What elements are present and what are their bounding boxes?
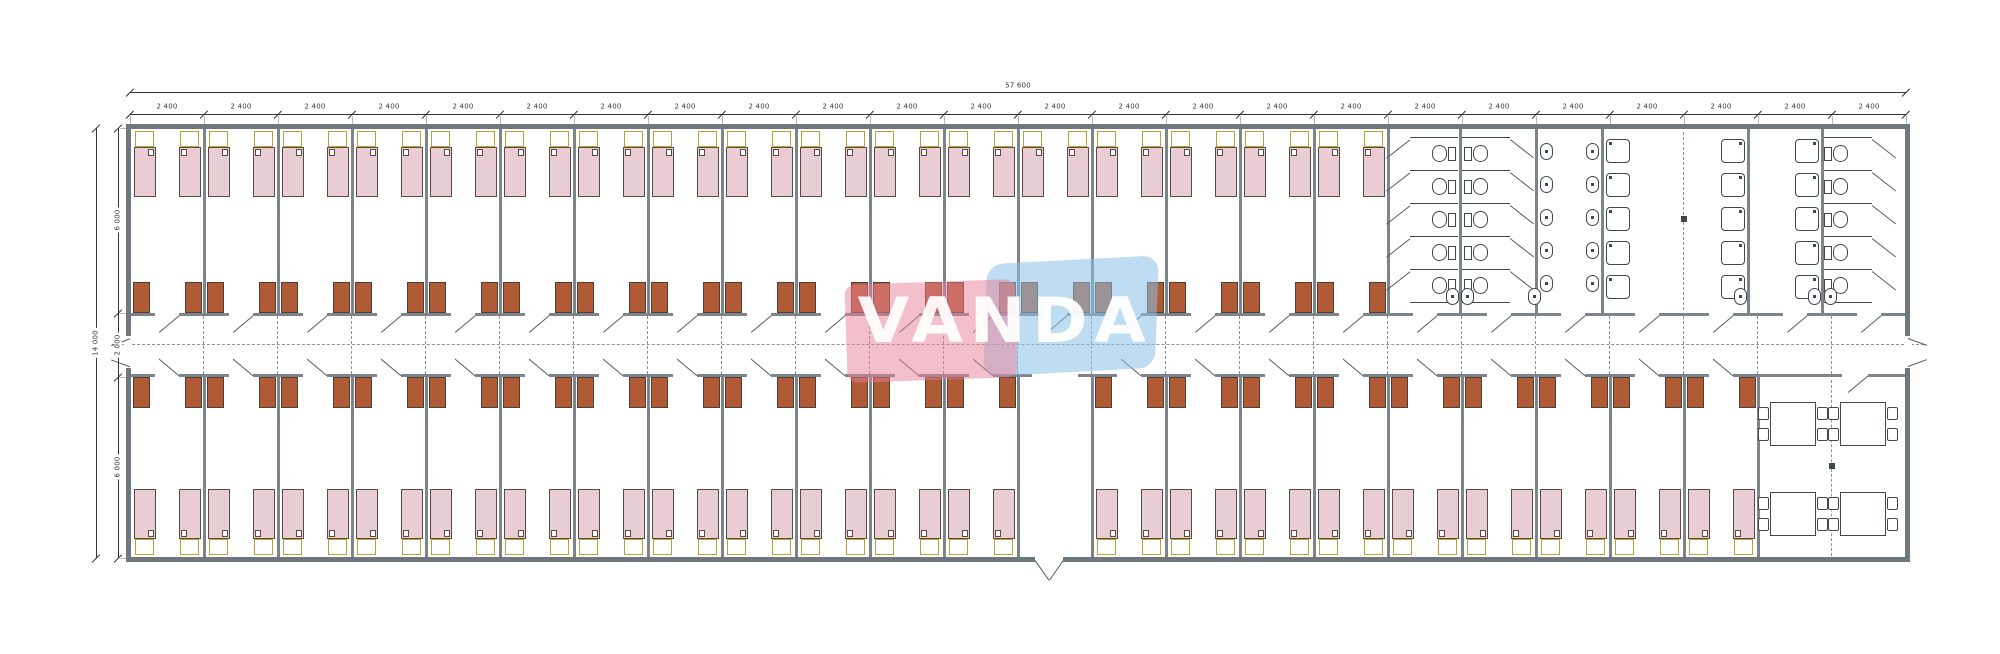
wall-partition-top [721, 129, 724, 316]
bed-blanket-fold [1143, 530, 1149, 537]
dim-height-segment-label: 6 000 [115, 454, 122, 479]
bed-pillow [431, 539, 450, 555]
toilet-bowl [1473, 244, 1488, 261]
bed-blanket-fold [1332, 149, 1338, 156]
wardrobe [1147, 282, 1164, 313]
grid-dashed-line [1609, 316, 1610, 374]
door-leaf [677, 315, 698, 333]
dim-module-width-label: 2 400 [1338, 104, 1363, 111]
wardrobe [1369, 377, 1386, 408]
grid-dashed-line [647, 316, 648, 374]
bed-blanket-fold [666, 530, 672, 537]
bed-pillow [254, 539, 273, 555]
bed-pillow [624, 539, 643, 555]
bed-blanket-fold [962, 149, 968, 156]
wardrobe [1295, 377, 1312, 408]
bed-blanket-fold [888, 530, 894, 537]
bed-pillow [624, 131, 643, 147]
wardrobe [925, 282, 942, 313]
dim-extension-line [1166, 116, 1167, 124]
dim-extension-line [130, 116, 131, 124]
bed-blanket-fold [1258, 149, 1264, 156]
bed-pillow [994, 131, 1013, 147]
bed-pillow [846, 131, 865, 147]
grid-marker [1829, 463, 1835, 469]
dim-total-height-label: 14 000 [93, 328, 100, 358]
door-leaf [751, 315, 772, 333]
toilet-bowl [1473, 145, 1488, 162]
shower-drain [1813, 278, 1816, 281]
bed-pillow [180, 131, 199, 147]
grid-dashed-line [1165, 316, 1166, 374]
bed-blanket-fold [1143, 149, 1149, 156]
wardrobe [1591, 377, 1608, 408]
wardrobe [407, 282, 424, 313]
floor-plan-drawing: 57 6002 4002 4002 4002 4002 4002 4002 40… [0, 0, 2000, 654]
toilet-stall-door [1510, 271, 1534, 290]
door-leaf [1343, 315, 1364, 333]
bed-pillow [550, 131, 569, 147]
bed-pillow [1245, 131, 1264, 147]
bed-pillow [1171, 131, 1190, 147]
dim-extension-line [870, 116, 871, 124]
dim-height-segment-label: 6 000 [115, 207, 122, 232]
wardrobe [1369, 282, 1386, 313]
dim-height-segment-label: 2 000 [115, 332, 122, 357]
wardrobe [1443, 377, 1460, 408]
dining-table [1770, 402, 1816, 446]
toilet-bowl [1432, 244, 1447, 261]
door-leaf [1861, 315, 1882, 333]
shower-drain [1813, 244, 1816, 247]
wardrobe [281, 377, 298, 408]
dim-line-total-width [130, 92, 1906, 93]
toilet-stall-divider [1824, 137, 1872, 138]
bed-blanket-fold [888, 149, 894, 156]
washbasin-detail [1545, 249, 1548, 252]
toilet-tank [1824, 246, 1832, 260]
bed-pillow [505, 131, 524, 147]
dim-extension-line [1758, 116, 1759, 124]
floor-plan-canvas: 57 6002 4002 4002 4002 4002 4002 4002 40… [0, 0, 2000, 654]
door-leaf [1269, 315, 1290, 333]
bed-blanket-fold [403, 149, 409, 156]
toilet-stall-door [1386, 172, 1410, 191]
wardrobe [999, 282, 1016, 313]
bed-blanket-fold [255, 149, 261, 156]
wardrobe [1517, 377, 1534, 408]
door-leaf [529, 315, 550, 333]
grid-dashed-line [1757, 316, 1758, 374]
dim-module-width-label: 2 400 [1116, 104, 1141, 111]
wardrobe [333, 282, 350, 313]
bed-pillow [476, 539, 495, 555]
bed-blanket-fold [1628, 530, 1634, 537]
bed-blanket-fold [329, 530, 335, 537]
door-leaf [1565, 315, 1586, 333]
bed-blanket-fold [444, 530, 450, 537]
bed-pillow [801, 539, 820, 555]
bed-pillow [402, 539, 421, 555]
door-leaf [899, 315, 920, 333]
toilet-stall-divider [1410, 269, 1458, 270]
wardrobe [629, 377, 646, 408]
wardrobe [947, 282, 964, 313]
wardrobe [873, 282, 890, 313]
bed-blanket-fold [477, 530, 483, 537]
wall-partition-top [1239, 129, 1242, 316]
wall-partition-bottom [277, 374, 280, 557]
bed-blanket-fold [518, 530, 524, 537]
bed-blanket-fold [740, 149, 746, 156]
shower-drain [1609, 142, 1612, 145]
dining-table [1770, 492, 1816, 536]
bed-pillow [254, 131, 273, 147]
bed-pillow [1467, 539, 1486, 555]
bed-pillow [1615, 539, 1634, 555]
dim-module-width-label: 2 400 [1264, 104, 1289, 111]
grid-dashed-line [1535, 316, 1536, 374]
bed-pillow [328, 539, 347, 555]
wardrobe [1073, 282, 1090, 313]
wardrobe [1169, 282, 1186, 313]
wall-partition-bottom [1387, 374, 1390, 557]
toilet-stall-divider [1462, 137, 1510, 138]
toilet-stall-door [1510, 205, 1534, 224]
wall-partition-bottom [1091, 374, 1094, 557]
shower-drain [1609, 278, 1612, 281]
wall-partition-bottom [721, 374, 724, 557]
dim-module-width-label: 2 400 [376, 104, 401, 111]
wardrobe [799, 377, 816, 408]
wardrobe [777, 377, 794, 408]
dim-extension-line [1536, 116, 1537, 124]
bed-pillow [1319, 539, 1338, 555]
bed-pillow [135, 539, 154, 555]
bed-blanket-fold [592, 530, 598, 537]
wall-partition-top [277, 129, 280, 316]
bed-blanket-fold [1480, 530, 1486, 537]
wardrobe [1221, 377, 1238, 408]
wardrobe [503, 282, 520, 313]
wall-partition-bottom [943, 374, 946, 557]
grid-dashed-line [499, 316, 500, 374]
wardrobe [429, 282, 446, 313]
bed-blanket-fold [1258, 530, 1264, 537]
wardrobe [333, 377, 350, 408]
shower-drain [1609, 176, 1612, 179]
bed-blanket-fold [625, 530, 631, 537]
bed-blanket-fold [370, 530, 376, 537]
wardrobe [133, 377, 150, 408]
washbasin-detail [1829, 295, 1832, 298]
wall-partition-top [1017, 129, 1020, 316]
toilet-tank [1464, 180, 1472, 194]
grid-dashed-line [869, 316, 870, 374]
dim-extension-line [352, 116, 353, 124]
wall-partition-top [351, 129, 354, 316]
door-leaf [455, 315, 476, 333]
wardrobe [1317, 377, 1334, 408]
dim-module-width-label: 2 400 [672, 104, 697, 111]
dim-extension-line [648, 116, 649, 124]
bed-pillow [727, 539, 746, 555]
bed-blanket-fold [773, 530, 779, 537]
dim-module-width-label: 2 400 [1708, 104, 1733, 111]
dim-extension-line [722, 116, 723, 124]
bed-pillow [135, 131, 154, 147]
bed-blanket-fold [814, 149, 820, 156]
dining-chair [1828, 407, 1839, 420]
bed-pillow [949, 539, 968, 555]
dim-extension-line [1906, 116, 1907, 124]
wardrobe [555, 282, 572, 313]
wardrobe [481, 377, 498, 408]
bed-blanket-fold [1661, 530, 1667, 537]
wardrobe [503, 377, 520, 408]
wardrobe [1169, 377, 1186, 408]
toilet-tank [1464, 246, 1472, 260]
toilet-stall-door [1386, 238, 1410, 257]
toilet-stall-door [1872, 271, 1896, 290]
shower-drain [1739, 210, 1742, 213]
wall-partition-top [499, 129, 502, 316]
dim-extension-line [1832, 116, 1833, 124]
bed-blanket-fold [1110, 530, 1116, 537]
exit-opening-right [1904, 336, 1912, 368]
wardrobe [259, 282, 276, 313]
grid-dashed-line [573, 316, 574, 374]
wall-partition-bottom [1239, 374, 1242, 557]
toilet-stall-divider [1824, 170, 1872, 171]
wardrobe [481, 282, 498, 313]
wardrobe [355, 282, 372, 313]
bed-pillow [1290, 539, 1309, 555]
grid-dashed-line [721, 316, 722, 374]
wall-partition-bottom [1017, 374, 1020, 557]
dim-module-width-label: 2 400 [1634, 104, 1659, 111]
wardrobe [925, 377, 942, 408]
toilet-stall-divider [1824, 203, 1872, 204]
door-leaf [1417, 315, 1438, 333]
bed-pillow [505, 539, 524, 555]
bed-pillow [1290, 131, 1309, 147]
bed-blanket-fold [1554, 530, 1560, 537]
bed-pillow [1586, 539, 1605, 555]
bed-blanket-fold [1184, 530, 1190, 537]
shower-drain [1609, 210, 1612, 213]
wardrobe [651, 282, 668, 313]
dim-module-width-label: 2 400 [894, 104, 919, 111]
bed-pillow [180, 539, 199, 555]
wardrobe [1021, 282, 1038, 313]
shower-drain [1739, 278, 1742, 281]
door-leaf [1121, 315, 1142, 333]
washbasin-detail [1739, 295, 1742, 298]
dim-module-width-label: 2 400 [302, 104, 327, 111]
toilet-stall-door [1510, 139, 1534, 158]
bed-blanket-fold [148, 530, 154, 537]
grid-dashed-line [1387, 316, 1388, 374]
wall-partition-bottom [1313, 374, 1316, 557]
grid-dashed-line [1017, 316, 1018, 374]
washbasin-detail [1545, 183, 1548, 186]
wall-partition-bottom [499, 374, 502, 557]
washbasin-detail [1451, 295, 1454, 298]
bed-pillow [1541, 539, 1560, 555]
bed-blanket-fold [1702, 530, 1708, 537]
toilet-stall-door [1872, 139, 1896, 158]
bed-pillow [550, 539, 569, 555]
bed-pillow [653, 539, 672, 555]
dim-module-width-label: 2 400 [1560, 104, 1585, 111]
dim-module-width-label: 2 400 [1190, 104, 1215, 111]
wardrobe [1147, 377, 1164, 408]
wardrobe [873, 377, 890, 408]
door-leaf [973, 315, 994, 333]
door-leaf [1491, 315, 1512, 333]
bed-pillow [209, 539, 228, 555]
dim-extension-line [500, 116, 501, 124]
grid-dashed-line [795, 316, 796, 374]
dim-extension-line [278, 116, 279, 124]
door-leaf [825, 315, 846, 333]
dim-extension-line [944, 116, 945, 124]
toilet-stall-door [1386, 205, 1410, 224]
bed-blanket-fold [444, 149, 450, 156]
bed-blanket-fold [403, 530, 409, 537]
grid-dashed-line [1239, 316, 1240, 374]
wardrobe [577, 282, 594, 313]
bed-pillow [1068, 131, 1087, 147]
wardrobe [1243, 377, 1260, 408]
bed-pillow [1142, 539, 1161, 555]
bed-blanket-fold [995, 530, 1001, 537]
door-leaf [307, 315, 328, 333]
wardrobe [355, 377, 372, 408]
bed-blanket-fold [1332, 530, 1338, 537]
toilet-bowl [1473, 277, 1488, 294]
washbasin-detail [1591, 249, 1594, 252]
wardrobe [207, 377, 224, 408]
bed-blanket-fold [148, 149, 154, 156]
dining-chair [1887, 518, 1898, 531]
wardrobe [1739, 377, 1756, 408]
wall-sanitary [1601, 129, 1604, 313]
bed-blanket-fold [962, 530, 968, 537]
dim-extension-line [1462, 116, 1463, 124]
door-leaf [381, 315, 402, 333]
dim-module-width-label: 2 400 [968, 104, 993, 111]
bed-pillow [357, 539, 376, 555]
washbasin-detail [1466, 295, 1469, 298]
bed-pillow [772, 539, 791, 555]
door-leaf [1787, 315, 1808, 333]
bed-pillow [727, 131, 746, 147]
bed-blanket-fold [551, 149, 557, 156]
bed-pillow [283, 539, 302, 555]
wardrobe [703, 377, 720, 408]
dim-extension-line [1018, 116, 1019, 124]
bed-blanket-fold [1406, 530, 1412, 537]
bed-pillow [476, 131, 495, 147]
bed-pillow [1023, 131, 1042, 147]
grid-dashed-line [1313, 316, 1314, 374]
bed-blanket-fold [370, 149, 376, 156]
shower-drain [1813, 176, 1816, 179]
dining-chair [1758, 497, 1769, 510]
wardrobe [725, 282, 742, 313]
bed-blanket-fold [699, 530, 705, 537]
toilet-tank [1448, 147, 1456, 161]
toilet-stall-divider [1462, 236, 1510, 237]
door-leaf [159, 315, 180, 333]
washbasin-detail [1545, 282, 1548, 285]
wardrobe [1243, 282, 1260, 313]
toilet-tank [1448, 246, 1456, 260]
bed-blanket-fold [847, 530, 853, 537]
wall-partition-top [1313, 129, 1316, 316]
wardrobe [999, 377, 1016, 408]
shower-drain [1813, 210, 1816, 213]
wall-partition-bottom [647, 374, 650, 557]
bed-blanket-fold [666, 149, 672, 156]
grid-dashed-line [1683, 316, 1684, 374]
dim-extension-line [426, 116, 427, 124]
bed-blanket-fold [1069, 149, 1075, 156]
bed-blanket-fold [1587, 530, 1593, 537]
bed-pillow [1512, 539, 1531, 555]
bed-pillow [875, 539, 894, 555]
bed-blanket-fold [477, 149, 483, 156]
dim-module-width-label: 2 400 [1856, 104, 1881, 111]
wardrobe [1665, 377, 1682, 408]
dim-module-width-label: 2 400 [1782, 104, 1807, 111]
door-leaf [1713, 315, 1734, 333]
bed-pillow [357, 131, 376, 147]
toilet-tank [1448, 213, 1456, 227]
wardrobe [207, 282, 224, 313]
wall-partition-bottom [1609, 374, 1612, 557]
wall-partition-bottom [425, 374, 428, 557]
wardrobe [1687, 377, 1704, 408]
bed-pillow [1364, 539, 1383, 555]
toilet-stall-door [1510, 238, 1534, 257]
dining-table [1840, 492, 1886, 536]
wardrobe [1613, 377, 1630, 408]
toilet-stall-divider [1410, 203, 1458, 204]
dim-extension-line [1092, 116, 1093, 124]
dining-chair [1817, 428, 1828, 441]
bed-pillow [1097, 539, 1116, 555]
bed-blanket-fold [222, 530, 228, 537]
toilet-stall-door [1872, 205, 1896, 224]
bed-pillow [920, 539, 939, 555]
bed-blanket-fold [1110, 149, 1116, 156]
bed-pillow [772, 131, 791, 147]
wall-partition-bottom [869, 374, 872, 557]
bed-blanket-fold [222, 149, 228, 156]
dining-chair [1887, 497, 1898, 510]
door-leaf [603, 315, 624, 333]
wardrobe [1465, 377, 1482, 408]
bed-pillow [1393, 539, 1412, 555]
wardrobe [407, 377, 424, 408]
wardrobe [703, 282, 720, 313]
shower-drain [1609, 244, 1612, 247]
shower-drain [1813, 142, 1816, 145]
dining-chair [1828, 497, 1839, 510]
